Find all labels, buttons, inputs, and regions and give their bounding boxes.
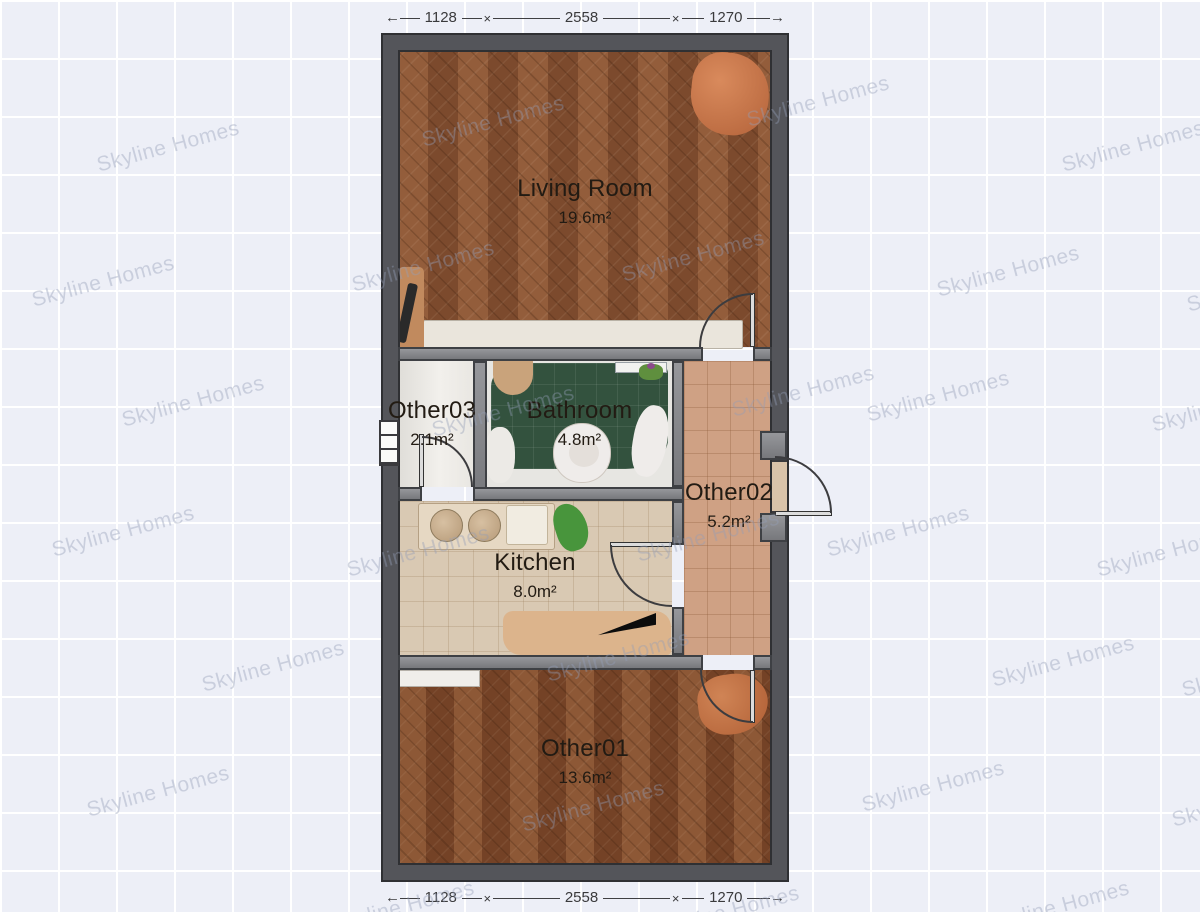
wall-other01-top [398,655,703,670]
bathroom-fixture [485,427,515,483]
watermark-text: Skyline Homes [859,756,1007,817]
dimension-line-top: ← 1128 × 2558 × 1270 → [385,8,785,28]
dim-line-segment [682,898,705,899]
dim-separator-icon: × [482,891,494,906]
wall-living-room-bottom-right [753,347,772,361]
dim-arrow-right-icon: → [770,9,785,27]
dim-line-segment [400,18,420,19]
bathroom-plant-flower [647,363,655,369]
floor-plan-canvas: ← 1128 × 2558 × 1270 → [0,0,1200,912]
watermark-text: Skyline Homes [1059,116,1200,177]
kitchen-plant [548,499,593,555]
dim-line-segment [603,898,670,899]
watermark-text: Skyline Homes [864,366,1012,427]
other01-shelf [398,670,480,687]
watermark-text: Skyline Homes [989,631,1137,692]
dim-line-segment [462,18,482,19]
entry-door-post-bottom [760,513,787,542]
wall-bathroom-bottom [473,487,684,501]
wall-living-room-bottom [398,347,703,361]
wall-other01-top-right [753,655,772,670]
dim-line-segment [493,18,560,19]
dim-label-left: 1128 [420,8,462,28]
dim-line-segment [493,898,560,899]
dim-line-segment [747,18,770,19]
watermark-text: Skyline Homes [934,241,1082,302]
watermark-text: Skyline Homes [1179,641,1200,702]
dim-label-left: 1128 [420,888,462,908]
dim-line-segment [747,898,770,899]
living-room-beanbag [687,49,773,139]
page: { "watermark": { "text": "Skyline Homes"… [0,0,1200,912]
dim-line-segment [682,18,705,19]
watermark-text: Skyline Homes [94,116,242,177]
dim-label-middle: 2558 [560,8,603,28]
watermark-text: Skyline Homes [1184,256,1200,317]
dim-separator-icon: × [670,891,682,906]
watermark-text: Skyline Homes [1169,771,1200,832]
bathroom-toilet-lid [569,439,599,467]
wall-kitchen-right-lower [672,607,684,655]
watermark-text: Skyline Homes [1094,521,1200,582]
watermark-text: Skyline Homes [1149,376,1200,437]
dim-separator-icon: × [482,11,494,26]
wall-other03-bottom [398,487,422,501]
dim-line-segment [400,898,420,899]
watermark-text: Skyline Homes [984,876,1132,912]
dim-arrow-left-icon: ← [385,9,400,27]
watermark-text: Skyline Homes [49,501,197,562]
kitchen-sink-basin-right [468,509,501,542]
dim-label-middle: 2558 [560,888,603,908]
room-other02[interactable] [684,361,772,655]
dim-arrow-right-icon: → [770,889,785,907]
other03-window[interactable] [379,420,399,466]
kitchen-cutting-board [506,505,548,545]
wall-other03-right [473,361,487,501]
dim-label-right: 1270 [704,888,747,908]
dim-arrow-left-icon: ← [385,889,400,907]
watermark-text: Skyline Homes [824,501,972,562]
dimension-line-bottom: ← 1128 × 2558 × 1270 → [385,888,785,908]
dim-line-segment [462,898,482,899]
kitchen-sink-basin-left [430,509,463,542]
floor-plan: Living Room 19.6m² Other03 2.1m² Bathroo… [383,35,787,880]
living-room-sideboard [423,320,743,349]
dim-label-right: 1270 [704,8,747,28]
wall-kitchen-right-upper [672,501,684,545]
room-living-room[interactable] [398,50,772,347]
watermark-text: Skyline Homes [119,371,267,432]
watermark-text: Skyline Homes [84,761,232,822]
watermark-text: Skyline Homes [29,251,177,312]
entry-door-swing [775,456,832,513]
dim-separator-icon: × [670,11,682,26]
room-bathroom[interactable] [487,361,672,487]
watermark-text: Skyline Homes [199,636,347,697]
wall-bathroom-right [672,361,684,487]
dim-line-segment [603,18,670,19]
